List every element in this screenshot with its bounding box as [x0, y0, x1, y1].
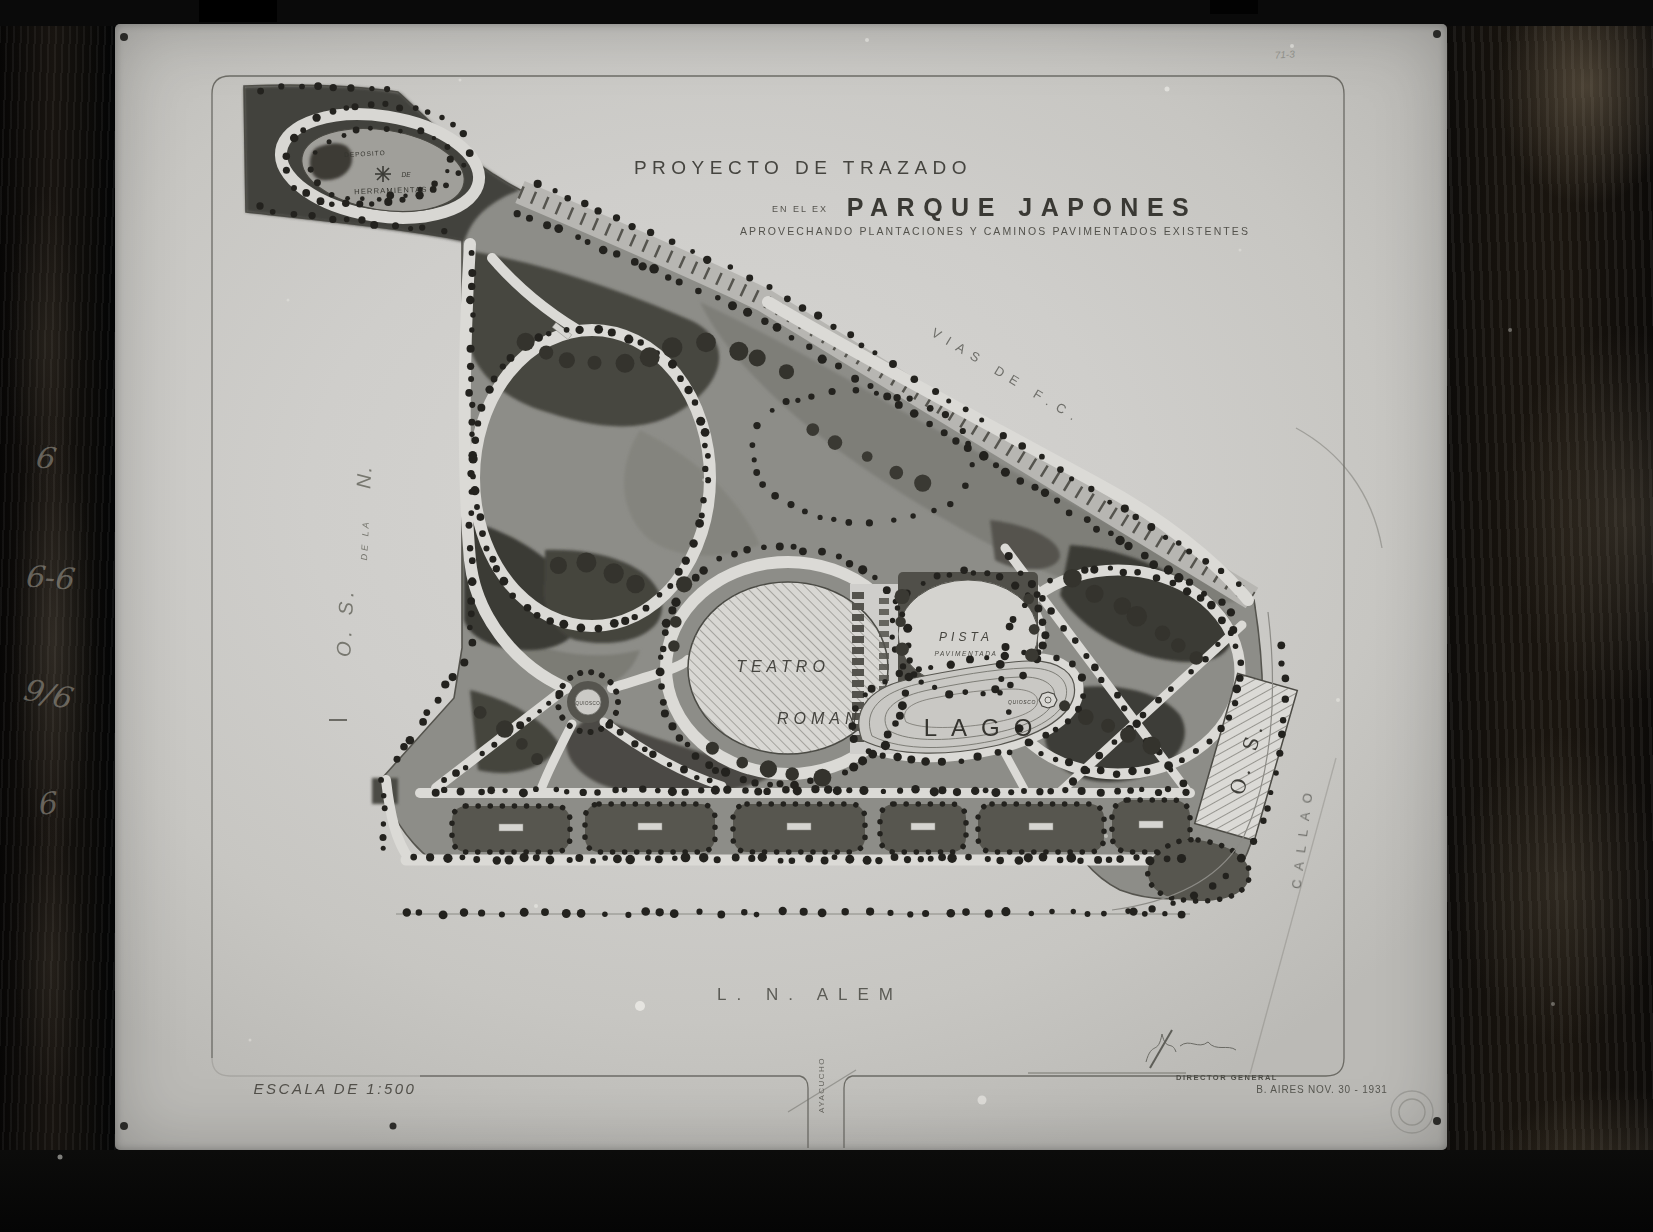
west-street-dela: DE LA — [359, 519, 371, 560]
west-street-n: N. — [352, 464, 375, 489]
south-street-label: L. N. ALEM — [717, 985, 903, 1004]
signature-role-label: DIRECTOR GENERAL — [1176, 1073, 1278, 1082]
title-line2-prefix: EN EL EX — [772, 204, 828, 214]
tree-dots — [403, 907, 1186, 919]
title-line1: PROYECTO DE TRAZADO — [634, 157, 972, 178]
frame-number: 71-3 — [1274, 48, 1295, 60]
scale-label: ESCALA DE 1:500 — [254, 1080, 417, 1097]
star-symbol — [375, 166, 391, 182]
west-street-os: O. S. — [332, 586, 358, 658]
west-street-label: O. S. DE LA N. — [332, 464, 375, 657]
signature-scrawl — [1146, 1030, 1236, 1068]
plan-drawing: PROYECTO DE TRAZADO EN EL EX PARQUE JAPO… — [0, 0, 1653, 1232]
photo-plate: 6 6-6 9/6 6 — [0, 0, 1653, 1232]
place-date-label: B. AIRES NOV. 30 - 1931 — [1256, 1084, 1387, 1095]
teatro-label-1: TEATRO — [736, 658, 830, 675]
pista-label-1: PISTA — [939, 630, 993, 644]
title-line3: APROVECHANDO PLANTACIONES Y CAMINOS PAVI… — [740, 225, 1250, 237]
east-street-label: CALLAO — [1289, 783, 1317, 889]
south-cross-street-label: AYACUCHO — [817, 1057, 826, 1113]
lago-label: LAGO — [924, 714, 1047, 741]
title-line2-main: PARQUE JAPONES — [847, 193, 1198, 221]
quiosco-plaza-label: QUIOSCO — [576, 701, 601, 706]
quiosco-lago-label: QUIOSCO — [1008, 699, 1036, 705]
deposito-label-2: DE — [401, 171, 411, 178]
